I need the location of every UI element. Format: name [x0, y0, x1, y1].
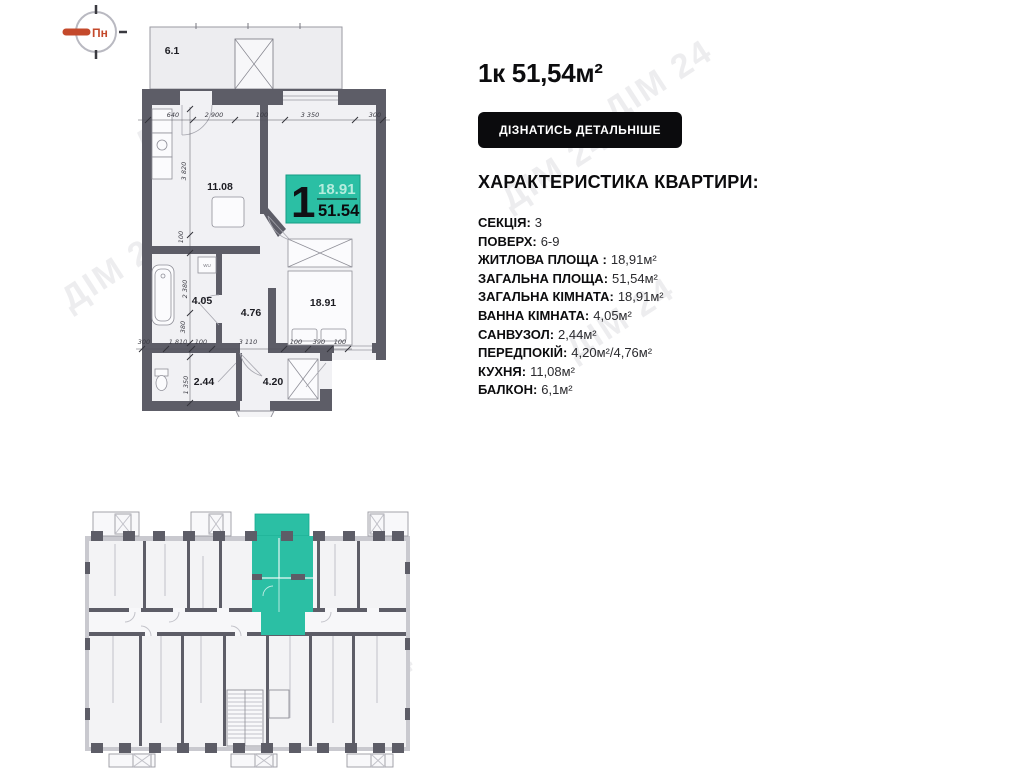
entrance-porch [236, 411, 274, 417]
dim-left-3: 2 380 [181, 280, 189, 299]
dim-bottom-3: 100 [195, 338, 207, 346]
characteristic-label: ЗАГАЛЬНА КІМНАТА: [478, 289, 614, 304]
characteristic-value: 6,1м² [541, 382, 572, 397]
characteristics-list: СЕКЦІЯ:3 ПОВЕРХ:6-9 ЖИТЛОВА ПЛОЩА :18,91… [478, 214, 664, 400]
characteristic-value: 2,44м² [558, 327, 597, 342]
characteristic-value: 3 [535, 215, 542, 230]
dim-bottom-2: 1 810 [169, 338, 188, 346]
toilet [155, 369, 168, 376]
characteristic-label: САНВУЗОЛ: [478, 327, 554, 342]
dim-top-1: 640 [167, 111, 179, 119]
dim-left-1: 3 820 [180, 162, 188, 181]
dim-top-4: 3 350 [301, 111, 320, 119]
building-floorplan [85, 508, 410, 768]
info-panel: 1к 51,54м² ДІЗНАТИСЬ ДЕТАЛЬНІШЕ ХАРАКТЕР… [478, 0, 808, 768]
characteristic-label: ПОВЕРХ: [478, 234, 537, 249]
characteristic-row: ВАННА КІМНАТА:4,05м² [478, 307, 664, 326]
washing-machine-label: WU [203, 263, 211, 268]
wc-label: 2.44 [194, 376, 215, 388]
badge-total-area: 51.54 [318, 202, 360, 220]
compass-label: Пн [92, 26, 108, 40]
characteristic-value: 18,91м² [618, 289, 664, 304]
page-title: 1к 51,54м² [478, 58, 603, 89]
balcony-area-label: 6.1 [165, 45, 180, 57]
characteristic-row: ПЕРЕДПОКІЙ:4,20м²/4,76м² [478, 344, 664, 363]
characteristic-label: КУХНЯ: [478, 364, 526, 379]
characteristic-label: БАЛКОН: [478, 382, 537, 397]
area-badge: 1 18.91 51.54 [286, 175, 360, 227]
living-label: 18.91 [310, 297, 336, 309]
dim-top-5: 300 [369, 111, 381, 119]
dim-top-3: 100 [256, 111, 268, 119]
characteristic-value: 18,91м² [611, 252, 657, 267]
characteristic-label: ПЕРЕДПОКІЙ: [478, 345, 567, 360]
characteristic-row: БАЛКОН:6,1м² [478, 381, 664, 400]
characteristic-label: ВАННА КІМНАТА: [478, 308, 589, 323]
characteristic-row: ЗАГАЛЬНА КІМНАТА:18,91м² [478, 288, 664, 307]
characteristics-heading: ХАРАКТЕРИСТИКА КВАРТИРИ: [478, 172, 759, 193]
lower-balconies [109, 754, 393, 767]
badge-living-area: 18.91 [318, 181, 356, 198]
dim-bottom-4: 3 110 [239, 338, 258, 346]
characteristic-row: ЗАГАЛЬНА ПЛОЩА:51,54м² [478, 270, 664, 289]
balcony-area: 6.1 [150, 23, 342, 89]
apartment-listing-page: ДІМ 24 ДІМ 24 ДІМ 24 ДІМ 24 ДІМ 24 ДІМ 2… [0, 0, 1024, 768]
characteristic-value: 11,08м² [530, 364, 575, 379]
characteristic-value: 4,20м²/4,76м² [571, 345, 652, 360]
kitchen-label: 11.08 [207, 181, 233, 193]
bathroom-label: 4.05 [192, 295, 213, 307]
entry-label: 4.20 [263, 376, 284, 388]
characteristic-row: САНВУЗОЛ:2,44м² [478, 326, 664, 345]
characteristic-row: ЖИТЛОВА ПЛОЩА :18,91м² [478, 251, 664, 270]
kitchen-table [212, 197, 244, 227]
dim-bottom-7: 100 [334, 338, 346, 346]
characteristic-label: СЕКЦІЯ: [478, 215, 531, 230]
dim-bottom-1: 300 [138, 338, 150, 346]
dim-bottom-5: 100 [290, 338, 302, 346]
badge-rooms-count: 1 [291, 178, 315, 227]
characteristic-row: ПОВЕРХ:6-9 [478, 233, 664, 252]
dim-left-2: 100 [177, 231, 185, 243]
characteristic-label: ЗАГАЛЬНА ПЛОЩА: [478, 271, 608, 286]
compass-north-indicator: Пн [58, 2, 134, 67]
compass-icon: Пн [58, 2, 134, 62]
characteristic-row: СЕКЦІЯ:3 [478, 214, 664, 233]
characteristic-label: ЖИТЛОВА ПЛОЩА : [478, 252, 607, 267]
details-button[interactable]: ДІЗНАТИСЬ ДЕТАЛЬНІШЕ [478, 112, 682, 148]
characteristic-value: 4,05м² [593, 308, 632, 323]
characteristic-value: 51,54м² [612, 271, 658, 286]
hall-label: 4.76 [241, 307, 262, 319]
dim-left-4: 380 [179, 321, 187, 333]
characteristic-row: КУХНЯ:11,08м² [478, 363, 664, 382]
dim-bottom-6: 390 [313, 338, 325, 346]
corridor [89, 608, 406, 636]
dim-left-5: 1 350 [182, 376, 190, 395]
characteristic-value: 6-9 [541, 234, 560, 249]
dim-top-2: 2 900 [205, 111, 224, 119]
apartment-floorplan: 6.1 [136, 13, 398, 422]
